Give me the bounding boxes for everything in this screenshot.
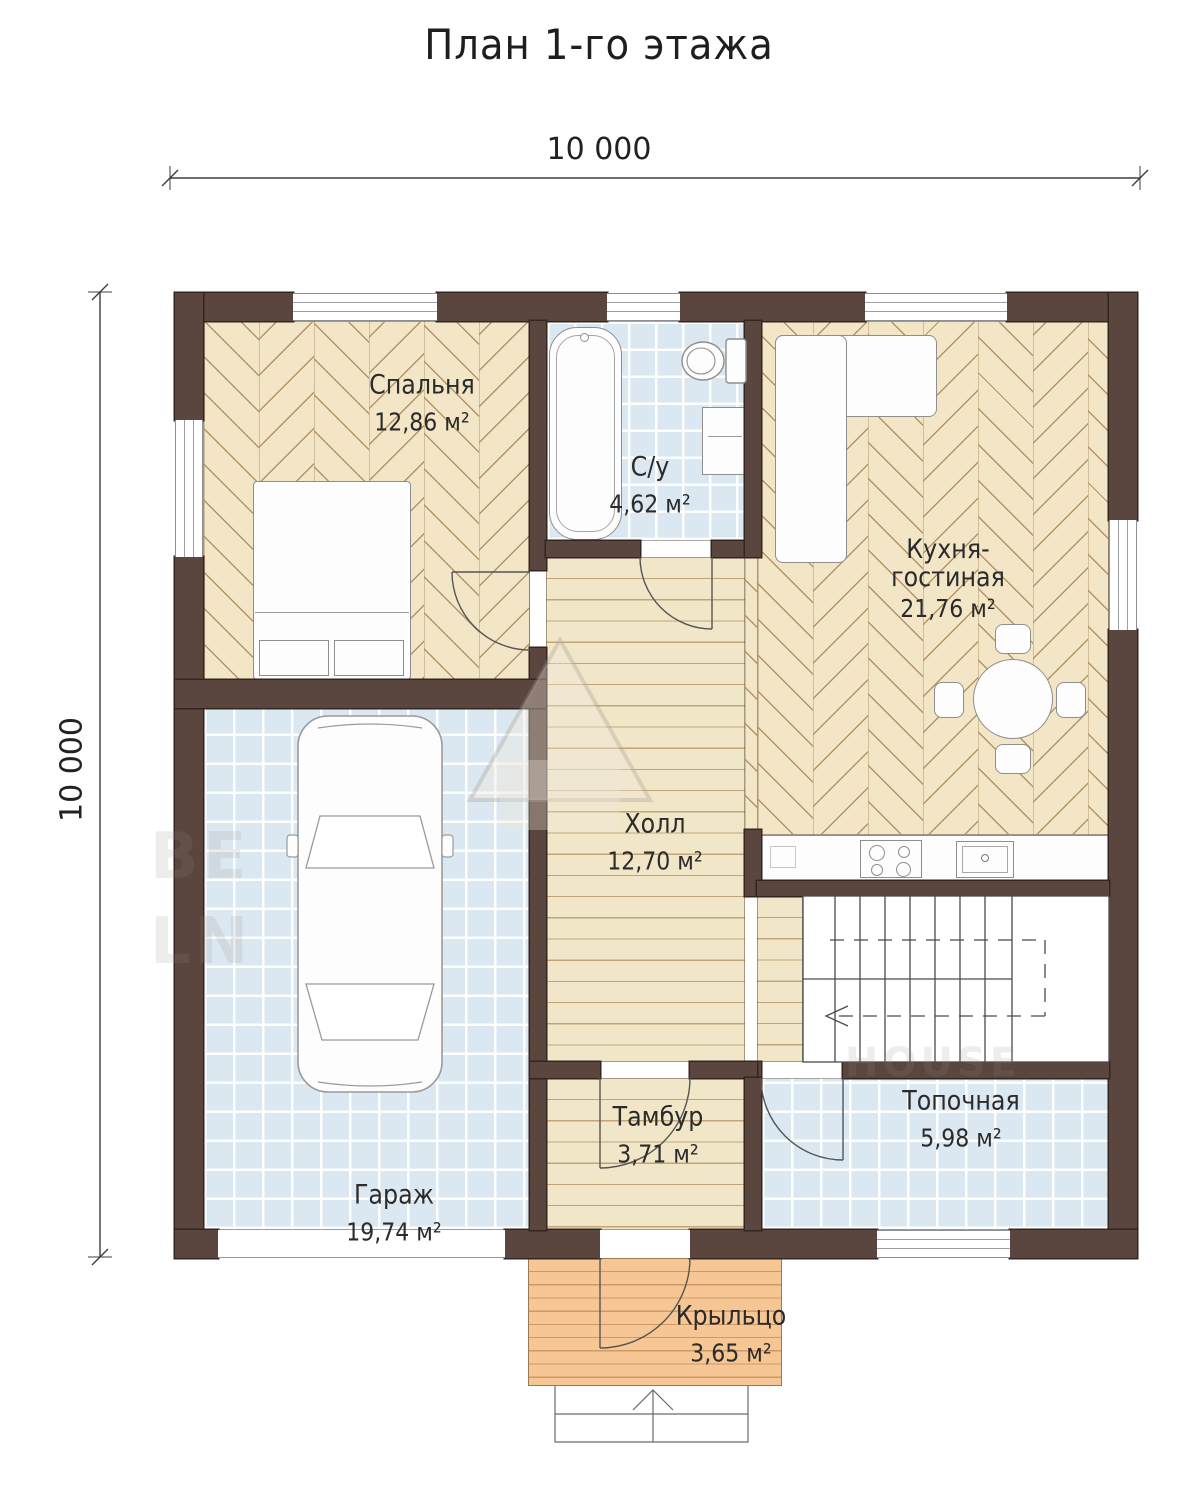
wall-hall-vestibule-left [530,1062,600,1078]
stove-burner-3 [871,864,883,876]
kitchen-label: Кухня- гостиная 21,76 м² [891,536,1005,624]
porch-steps [555,1386,748,1442]
bathtub-faucet [580,333,589,342]
bathroom-area: 4,62 м² [609,490,690,520]
dining-chair-right [1056,682,1086,718]
vestibule-label: Тамбур 3,71 м² [613,1103,704,1170]
wall-bottom-4 [1010,1230,1137,1258]
stove-burner-4 [896,862,911,877]
wall-bath-hall-left [546,541,640,557]
garage-name: Гараж [346,1181,441,1211]
dining-chair-top [995,624,1031,654]
sink-tap [981,854,989,862]
wall-bottom-2 [505,1230,600,1258]
page-title: План 1-го этажа [48,20,1150,69]
wall-right-1 [1109,293,1137,520]
wall-kitchen-stairs [757,881,1109,896]
counter-module [770,846,796,868]
wall-top-2 [437,293,607,321]
boiler-label: Топочная 5,98 м² [902,1087,1020,1154]
porch-name: Крыльцо [676,1302,787,1332]
stairs-direction-arrow [826,1006,848,1026]
hall-label: Холл 12,70 м² [607,810,702,877]
kitchen-name-line2: гостиная [891,564,1005,592]
hall-area: 12,70 м² [607,847,702,877]
dining-table [973,659,1053,739]
bedroom-window-left [175,420,203,557]
stove-burner-1 [869,845,885,861]
porch-label: Крыльцо 3,65 м² [676,1302,787,1369]
boiler-area: 5,98 м² [902,1124,1020,1154]
dimension-height-label: 10 000 [55,670,90,870]
porch-arrow-head [633,1390,673,1410]
vestibule-name: Тамбур [613,1103,704,1133]
wall-garage-hall [530,680,546,1230]
kitchen-name-line1: Кухня- [891,536,1005,564]
wall-stairs-boiler [843,1062,1109,1078]
porch-door-opening [600,1230,690,1258]
dimension-width-label: 10 000 [0,132,1198,167]
dining-chair-left [934,682,964,718]
wall-bottom-3 [690,1230,877,1258]
boiler-name: Топочная [902,1087,1020,1117]
kitchen-counter [757,835,1109,881]
bathroom-label: С/у 4,62 м² [609,453,690,520]
garage-floor [203,708,530,1230]
bedroom-window-top [293,293,437,321]
wall-right-2 [1109,630,1137,1258]
stairs-walk-line [830,940,1045,1016]
stove-burner-2 [898,846,910,858]
bathroom-name: С/у [609,453,690,483]
wall-bedroom-bath-lower [530,648,546,680]
bed-cushion-left [259,640,329,676]
wall-left-1 [175,293,203,420]
floor-plan-page: План 1-го этажа 10 000 10 000 [0,0,1198,1490]
sofa-left-section [775,335,847,563]
wall-bath-kitchen [745,321,761,557]
wall-hall-vestibule-right [690,1062,757,1078]
bathtub-inner [556,335,615,532]
bedroom-name: Спальня [369,371,475,401]
stove [860,840,922,878]
porch-area: 3,65 м² [676,1339,787,1369]
kitchen-window-top [865,293,1007,321]
hall-name: Холл [607,810,702,840]
bed-blanket-line [255,612,409,613]
wall-top-3 [680,293,865,321]
bed-cushion-right [334,640,404,676]
bedroom-area: 12,86 м² [369,408,475,438]
wall-bedroom-bath-upper [530,321,546,570]
wall-vestibule-boiler [745,1078,761,1230]
kitchen-window-right [1109,520,1137,630]
boiler-window [877,1230,1010,1258]
stair-approach-floor [757,896,803,1062]
washing-machine [702,407,748,475]
vestibule-area: 3,71 м² [613,1140,704,1170]
garage-area: 19,74 м² [346,1218,441,1248]
garage-label: Гараж 19,74 м² [346,1181,441,1248]
washing-machine-door-line [708,436,742,437]
wall-bedroom-garage [175,680,546,708]
bedroom-label: Спальня 12,86 м² [369,371,475,438]
dining-chair-bottom [995,744,1031,774]
staircase [803,896,1109,1062]
wall-left-2 [175,557,203,1258]
bathroom-window [607,293,680,321]
kitchen-area: 21,76 м² [891,594,1005,624]
wall-bottom-1 [175,1230,218,1258]
